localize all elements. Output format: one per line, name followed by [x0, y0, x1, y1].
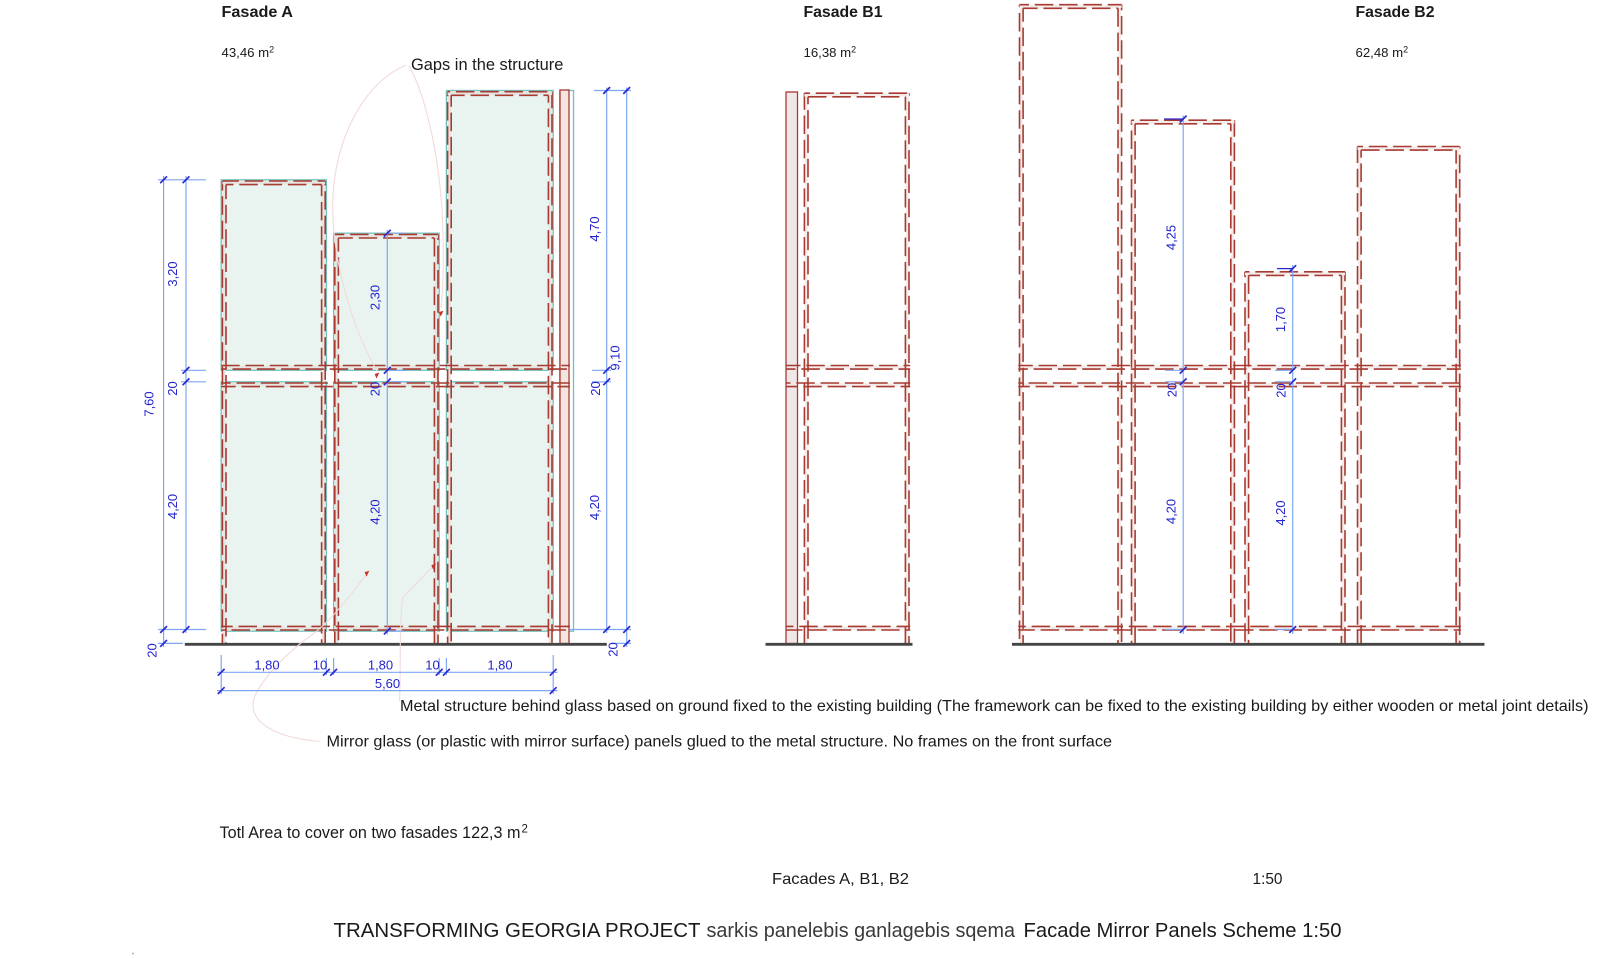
svg-text:Facades A, B1, B2: Facades A, B1, B2: [772, 871, 909, 888]
svg-text:4,20: 4,20: [587, 495, 602, 520]
svg-text:2: 2: [522, 824, 528, 836]
svg-text:2,30: 2,30: [368, 285, 383, 310]
svg-text:9,10: 9,10: [607, 345, 622, 370]
svg-text:20: 20: [606, 642, 621, 656]
svg-text:1:50: 1:50: [1253, 871, 1283, 888]
svg-text:4,20: 4,20: [368, 499, 383, 524]
svg-text:TRANSFORMING GEORGIA PROJECT: TRANSFORMING GEORGIA PROJECT: [334, 920, 701, 942]
svg-text:4,20: 4,20: [1273, 500, 1288, 525]
svg-text:20: 20: [144, 643, 159, 657]
svg-text:Totl Area to cover on two fasa: Totl Area to cover on two fasades 122,3 …: [220, 824, 521, 842]
svg-text:10: 10: [425, 658, 439, 673]
svg-text:20: 20: [165, 381, 180, 395]
svg-text:Fasade B1: Fasade B1: [804, 4, 883, 21]
svg-text:4,20: 4,20: [165, 494, 180, 519]
svg-text:20: 20: [1165, 383, 1180, 397]
svg-text:Gaps in the structure: Gaps in the structure: [411, 55, 563, 74]
svg-text:20: 20: [368, 382, 383, 396]
svg-text:4,20: 4,20: [1164, 499, 1179, 524]
svg-text:5,60: 5,60: [375, 676, 400, 691]
svg-text:4,70: 4,70: [587, 216, 602, 241]
svg-text:43,46 m2: 43,46 m2: [222, 45, 275, 61]
svg-text:16,38 m2: 16,38 m2: [804, 45, 857, 61]
svg-text:Facade Mirror Panels Scheme 1:: Facade Mirror Panels Scheme 1:50: [1024, 920, 1342, 942]
svg-text:Mirror glass (or plastic with: Mirror glass (or plastic with mirror sur…: [327, 733, 1113, 750]
svg-text:1,70: 1,70: [1273, 307, 1288, 332]
svg-text:7,60: 7,60: [142, 391, 157, 416]
svg-text:Fasade A: Fasade A: [222, 4, 294, 21]
svg-text:1,80: 1,80: [368, 658, 393, 673]
svg-text:20: 20: [1274, 383, 1289, 397]
svg-text:3,20: 3,20: [165, 261, 180, 286]
svg-text:20: 20: [588, 381, 603, 395]
svg-text:4,25: 4,25: [1164, 225, 1179, 250]
svg-text:Metal structure behind glass b: Metal structure behind glass based on gr…: [400, 698, 1589, 715]
svg-text:10: 10: [313, 658, 327, 673]
svg-text:62,48 m2: 62,48 m2: [1356, 45, 1409, 61]
svg-text:sarkis panelebis ganlagebis sq: sarkis panelebis ganlagebis sqema: [707, 920, 1016, 942]
svg-text:1,80: 1,80: [487, 658, 512, 673]
svg-text:Fasade B2: Fasade B2: [1356, 4, 1435, 21]
svg-text:1,80: 1,80: [254, 658, 279, 673]
